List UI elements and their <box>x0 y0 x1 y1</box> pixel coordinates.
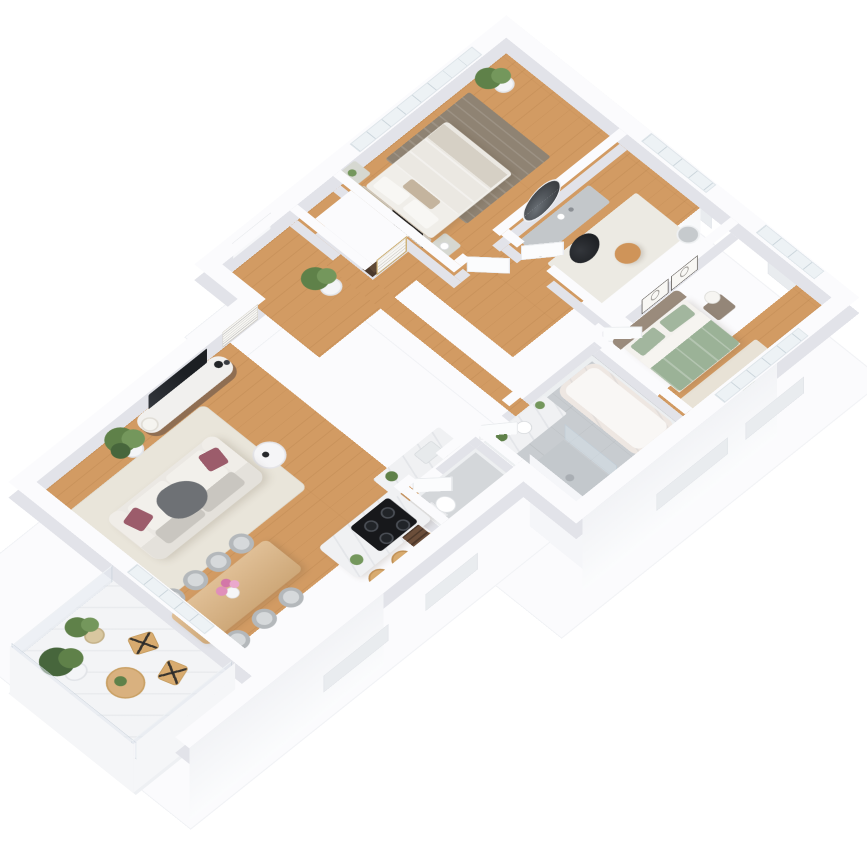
isometric-floor-plan <box>0 21 867 839</box>
floor-plan-stage <box>0 0 867 867</box>
master-door-leaf <box>467 256 510 273</box>
wc-door-leaf <box>413 477 453 493</box>
